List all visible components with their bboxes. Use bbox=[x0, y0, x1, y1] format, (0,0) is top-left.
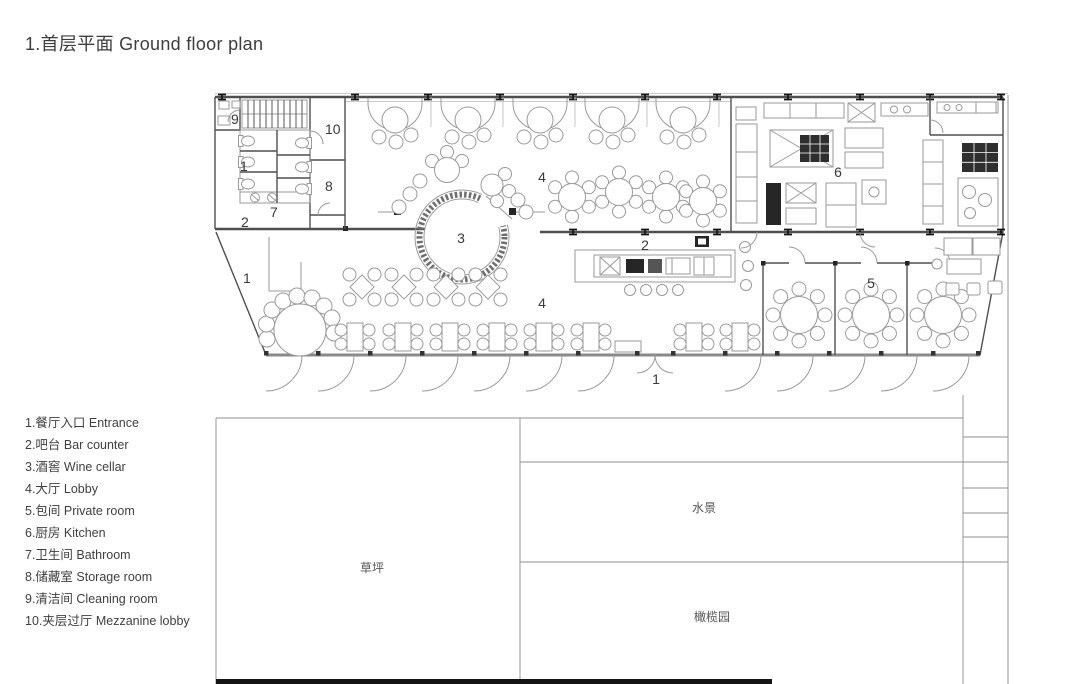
marker-entrance-side: 1 bbox=[240, 158, 248, 174]
marker-private-room: 5 bbox=[867, 275, 875, 291]
bathroom-fixtures bbox=[239, 130, 312, 203]
marker-lobby-upper: 4 bbox=[538, 169, 546, 185]
large-round-table bbox=[259, 288, 343, 356]
site-label-lawn: 草坪 bbox=[360, 561, 384, 575]
wine-cellar bbox=[378, 146, 545, 285]
site-edge-bar bbox=[216, 679, 772, 684]
marker-cleaning-room: 9 bbox=[231, 111, 239, 127]
facade-doors bbox=[264, 351, 981, 391]
marker-wine-cellar: 3 bbox=[457, 230, 465, 246]
marker-lobby-lower: 4 bbox=[538, 295, 546, 311]
stairs bbox=[242, 100, 307, 128]
kitchen-equipment bbox=[736, 97, 1003, 248]
marker-bar-left: 2 bbox=[241, 214, 249, 230]
marker-kitchen: 6 bbox=[834, 164, 842, 180]
lobby-round-tables bbox=[549, 166, 727, 227]
marker-entrance-left: 1 bbox=[243, 270, 251, 286]
site-label-olive-garden: 橄榄园 bbox=[694, 609, 730, 624]
ground-floor-plan-drawing: 草坪 水景 橄榄园 9 10 1 8 7 2 1 3 4 2 6 5 4 1 bbox=[0, 0, 1080, 684]
private-rooms bbox=[761, 247, 976, 355]
bar-counter bbox=[575, 236, 754, 296]
marker-entrance-main: 1 bbox=[652, 371, 660, 387]
marker-mezzanine-lobby: 10 bbox=[325, 121, 341, 137]
marker-storage-room: 8 bbox=[325, 178, 333, 194]
marker-bathroom: 7 bbox=[270, 204, 278, 220]
booth-seating-row bbox=[368, 97, 719, 149]
marker-bar-counter: 2 bbox=[641, 237, 649, 253]
site-label-water-feature: 水景 bbox=[692, 501, 716, 515]
